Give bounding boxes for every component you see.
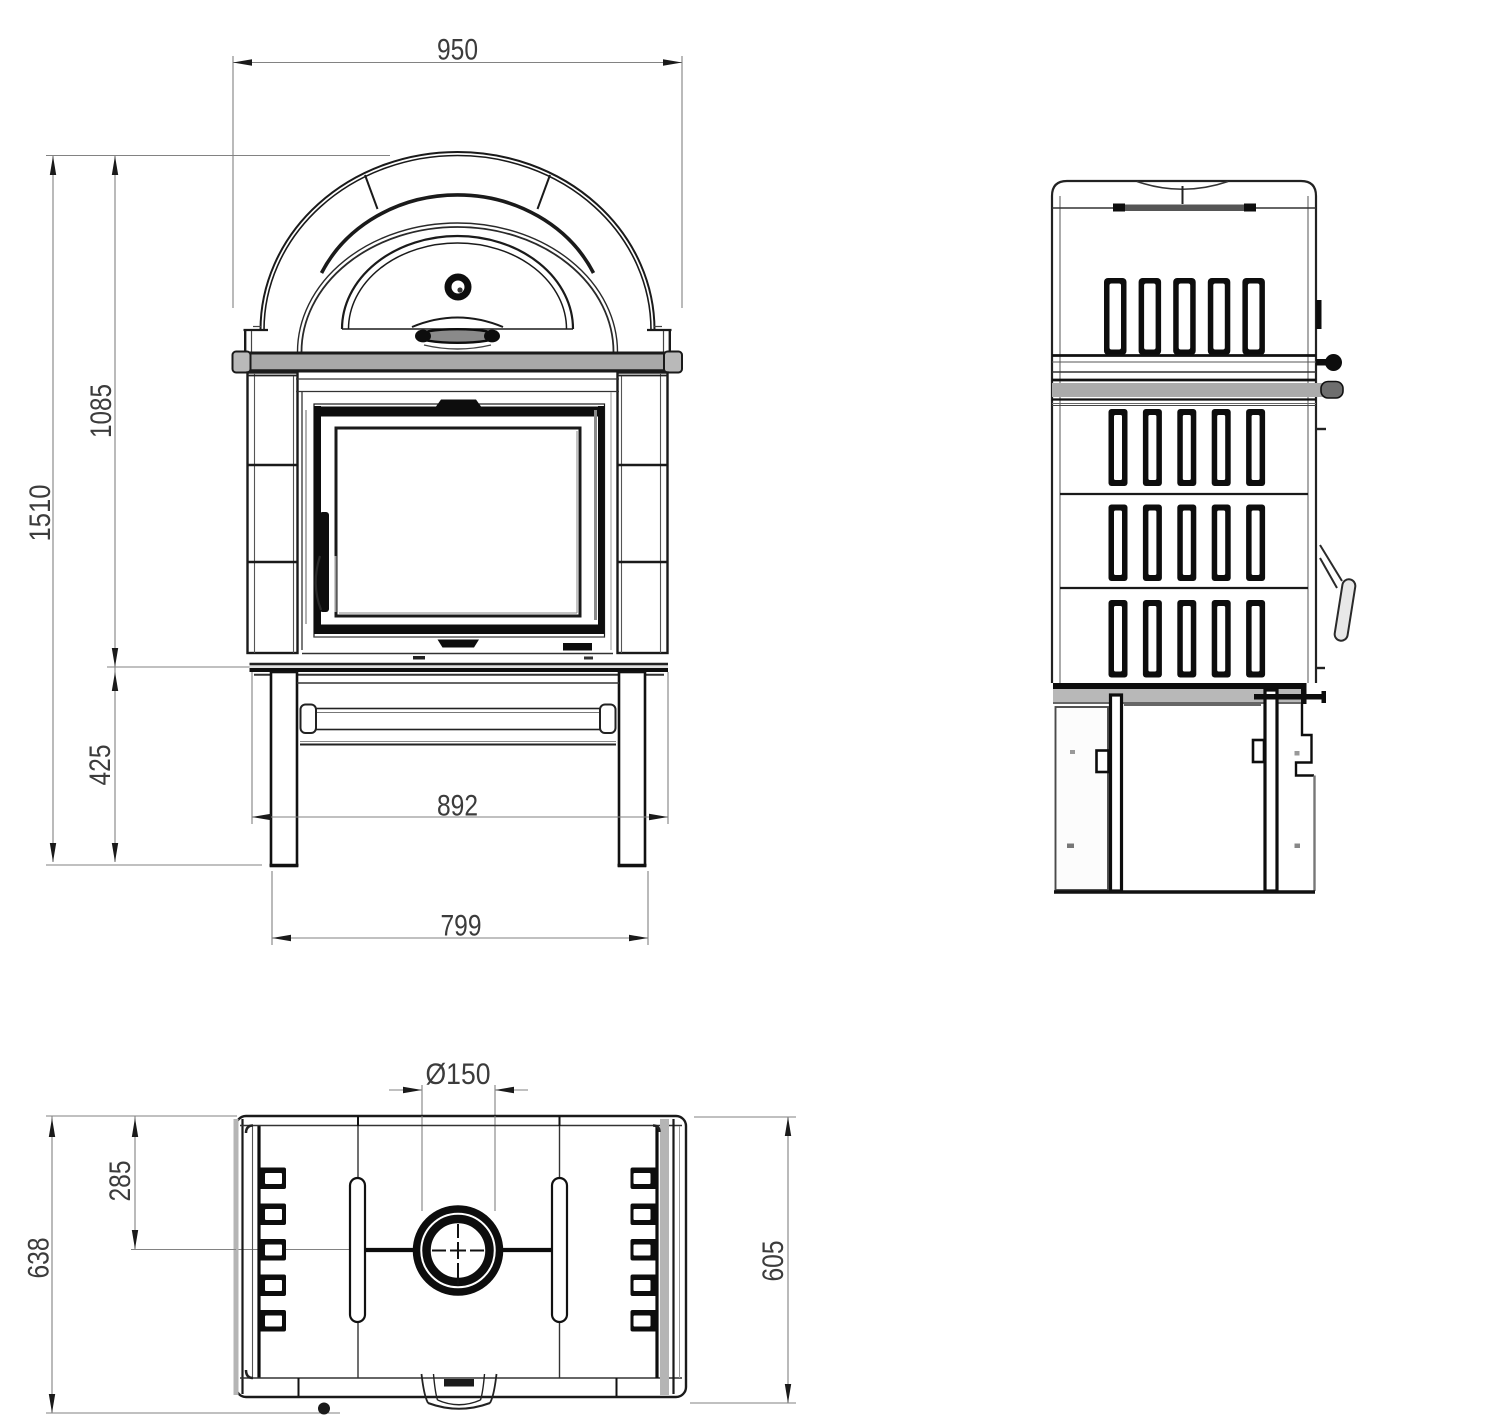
svg-text:285: 285 (104, 1161, 137, 1202)
svg-text:799: 799 (441, 910, 482, 943)
svg-text:1510: 1510 (24, 485, 57, 542)
svg-text:425: 425 (84, 745, 117, 786)
svg-text:892: 892 (437, 790, 478, 823)
svg-text:Ø150: Ø150 (426, 1058, 491, 1091)
svg-text:950: 950 (437, 34, 478, 67)
svg-text:605: 605 (757, 1241, 790, 1282)
svg-text:1085: 1085 (85, 384, 118, 438)
svg-text:638: 638 (23, 1238, 56, 1279)
